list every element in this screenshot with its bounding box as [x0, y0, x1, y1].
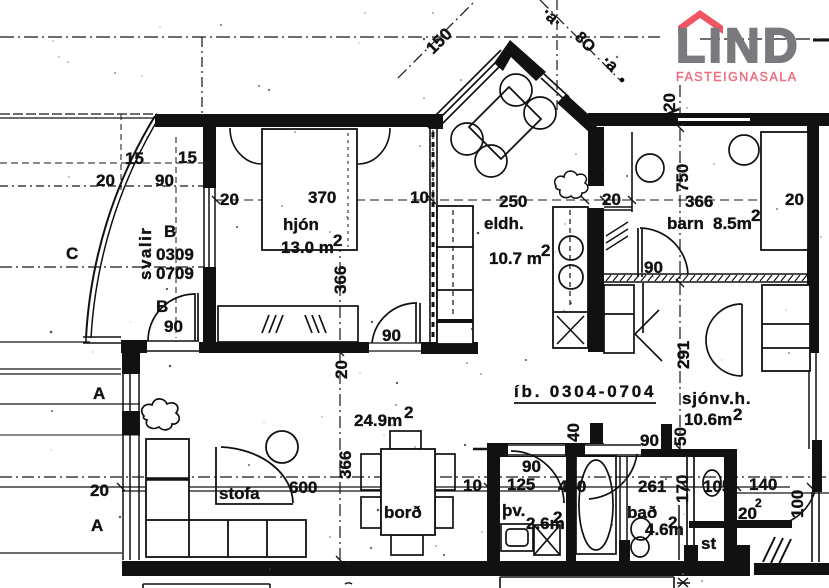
svg-text:stofa: stofa [219, 484, 260, 503]
svg-text:svalir: svalir [136, 227, 155, 280]
svg-text:0309: 0309 [156, 245, 194, 264]
svg-text:2: 2 [333, 231, 342, 250]
svg-text:24.9m: 24.9m [354, 411, 402, 430]
svg-text:þv.: þv. [502, 501, 525, 520]
svg-text:2: 2 [751, 206, 760, 225]
svg-text:eldh.: eldh. [484, 214, 524, 233]
svg-text:20: 20 [602, 190, 621, 209]
svg-text:barn: barn [667, 214, 704, 233]
svg-text:261: 261 [638, 477, 666, 496]
svg-text:20: 20 [785, 190, 804, 209]
svg-text:10.6m: 10.6m [684, 410, 732, 429]
svg-text:90: 90 [164, 317, 183, 336]
svg-text:366: 366 [331, 266, 350, 294]
svg-text:LIND: LIND [676, 20, 801, 73]
svg-text:10: 10 [410, 188, 429, 207]
svg-text:0709: 0709 [156, 264, 194, 283]
svg-text:90: 90 [640, 431, 659, 450]
svg-text:B: B [156, 297, 168, 316]
svg-text:20: 20 [332, 360, 351, 379]
svg-text:20: 20 [220, 190, 239, 209]
svg-text:291: 291 [674, 341, 693, 369]
svg-text:20: 20 [96, 171, 115, 190]
svg-text:4.6m: 4.6m [645, 520, 684, 539]
svg-text:hjón: hjón [283, 215, 319, 234]
svg-text:A: A [93, 384, 105, 403]
svg-text:125: 125 [507, 475, 535, 494]
svg-text:2: 2 [755, 496, 762, 510]
svg-text:15: 15 [178, 148, 197, 167]
svg-text:90: 90 [522, 457, 541, 476]
svg-text:90: 90 [382, 326, 401, 345]
svg-text:366: 366 [685, 192, 713, 211]
svg-text:90: 90 [155, 171, 174, 190]
svg-text:A: A [91, 516, 103, 535]
svg-text:íb. 0304-0704: íb. 0304-0704 [514, 382, 656, 401]
svg-text:FASTEIGNASALA: FASTEIGNASALA [676, 70, 798, 84]
svg-text:370: 370 [308, 188, 336, 207]
svg-text:8.5m: 8.5m [713, 214, 752, 233]
svg-text:2: 2 [404, 403, 413, 422]
svg-text:105: 105 [703, 477, 731, 496]
svg-text:250: 250 [499, 192, 527, 211]
svg-text:2: 2 [733, 405, 742, 424]
svg-text:2: 2 [668, 513, 677, 532]
svg-text:2: 2 [541, 241, 550, 260]
svg-text:10.7 m: 10.7 m [489, 249, 542, 268]
svg-text:410: 410 [558, 477, 586, 496]
svg-text:C: C [66, 244, 78, 263]
svg-text:borð: borð [384, 503, 422, 522]
svg-text:20: 20 [90, 481, 109, 500]
svg-text:600: 600 [289, 478, 317, 497]
svg-text:50: 50 [671, 427, 690, 446]
svg-text:100: 100 [788, 490, 807, 518]
svg-text:20: 20 [660, 93, 679, 112]
svg-text:366: 366 [336, 451, 355, 479]
svg-text:140: 140 [749, 475, 777, 494]
svg-text:750: 750 [673, 164, 692, 192]
svg-text:90: 90 [644, 258, 663, 277]
svg-text:st: st [701, 534, 716, 553]
svg-text:40: 40 [564, 423, 583, 442]
svg-text:2: 2 [553, 508, 562, 527]
svg-text:B: B [164, 222, 176, 241]
svg-text:10: 10 [463, 476, 482, 495]
svg-text:13.0 m: 13.0 m [281, 238, 334, 257]
svg-text:170: 170 [673, 475, 692, 503]
svg-text:15: 15 [125, 149, 144, 168]
